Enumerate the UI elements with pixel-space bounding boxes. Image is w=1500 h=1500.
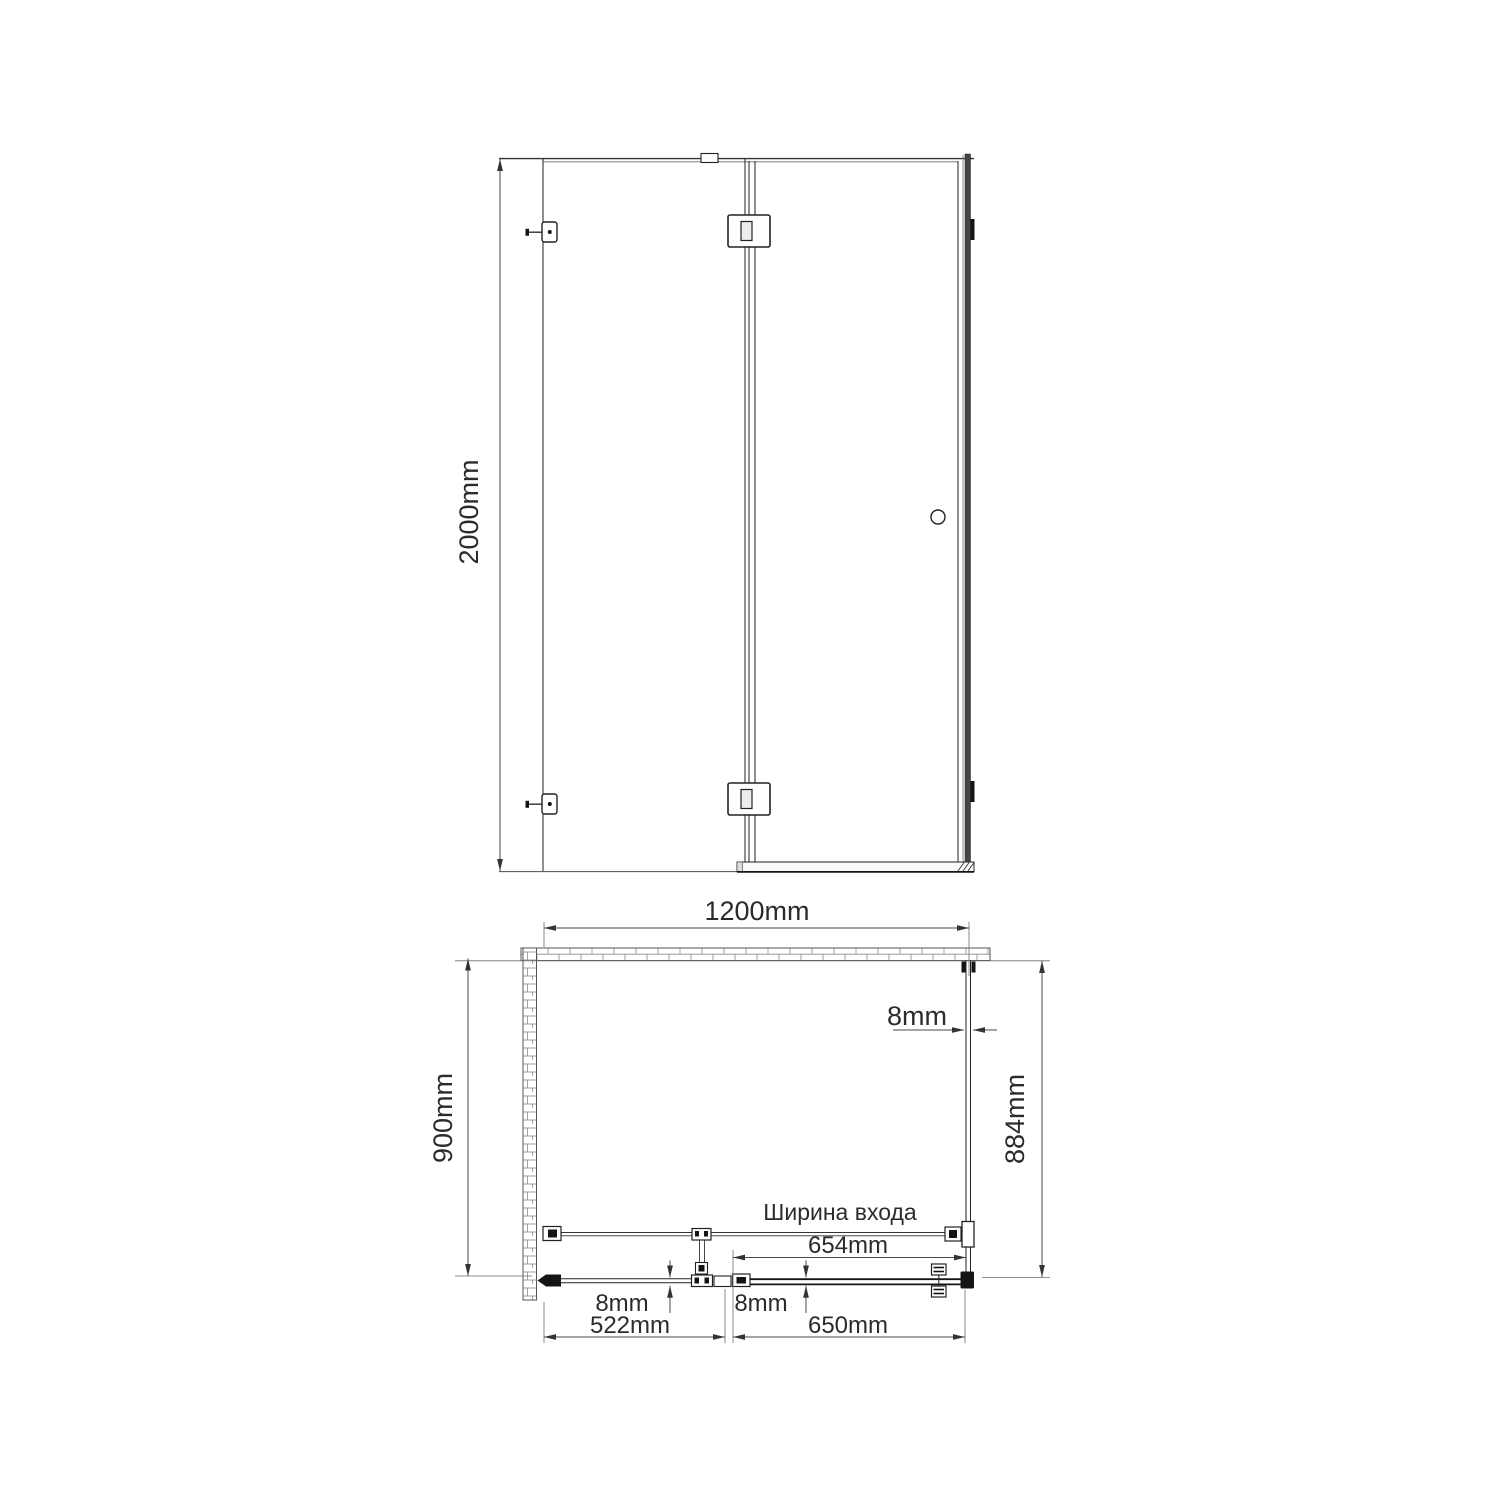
bar-mid-bracket <box>692 1229 711 1241</box>
fixed-glass-plan <box>538 1275 692 1287</box>
door-hinge-top <box>728 215 770 247</box>
fixed-glass-panel <box>543 159 745 871</box>
dim-door-thickness-label: 8mm <box>734 1290 787 1317</box>
dim-fixed-width-label: 522mm <box>590 1312 670 1339</box>
dimension-side-thickness-8: 8mm <box>887 1001 997 1031</box>
technical-drawing-sheet: 2000mm <box>0 0 1500 1500</box>
back-wall <box>521 948 990 961</box>
dim-side-thickness-label: 8mm <box>887 1001 947 1031</box>
side-panel-clip-bottom <box>971 781 975 802</box>
dimension-door-thickness-8: 8mm <box>734 1261 806 1318</box>
front-elevation-view: 2000mm <box>454 154 975 873</box>
entrance-caption: Ширина входа <box>763 1199 917 1225</box>
dim-door-width-label: 650mm <box>808 1312 888 1339</box>
pivot-hinge-plan <box>692 1240 713 1287</box>
wall-bracket-top <box>526 222 558 242</box>
glass-wall-clamp <box>538 1275 562 1287</box>
drawing-svg: 2000mm <box>0 0 1500 1500</box>
dimension-fixed-thickness-8: 8mm <box>595 1261 670 1318</box>
threshold-sill <box>499 862 974 872</box>
dim-height-label: 2000mm <box>454 459 484 564</box>
side-panel-clip-top <box>971 219 975 240</box>
plan-view: 1200mm 900mm 884mm 8mm Ширина входа 654m… <box>428 896 1050 1343</box>
dim-entrance-width-label: 654mm <box>808 1232 888 1259</box>
door-corner-bracket <box>961 1272 975 1289</box>
door-knob <box>931 510 945 524</box>
support-bar-coupler <box>701 154 718 163</box>
door-panel <box>749 161 958 866</box>
dimension-width-1200: 1200mm <box>544 896 969 976</box>
support-bar-top <box>499 154 974 163</box>
dim-depth-label: 900mm <box>428 1073 458 1163</box>
dim-side-length-label: 884mm <box>1000 1074 1030 1164</box>
door-handle-plan <box>932 1264 947 1297</box>
dimension-height-2000: 2000mm <box>454 159 500 871</box>
side-panel-profile <box>963 154 975 872</box>
support-bar-plan <box>543 1222 974 1248</box>
wall-bracket-bottom <box>526 794 558 814</box>
dimension-side-884: 884mm <box>982 961 1050 1278</box>
dim-width-label: 1200mm <box>704 896 809 926</box>
side-panel-wall-anchor <box>962 962 966 973</box>
left-wall <box>523 948 537 1300</box>
door-hinge-bottom <box>728 783 770 815</box>
dimension-depth-900: 900mm <box>428 959 532 1277</box>
